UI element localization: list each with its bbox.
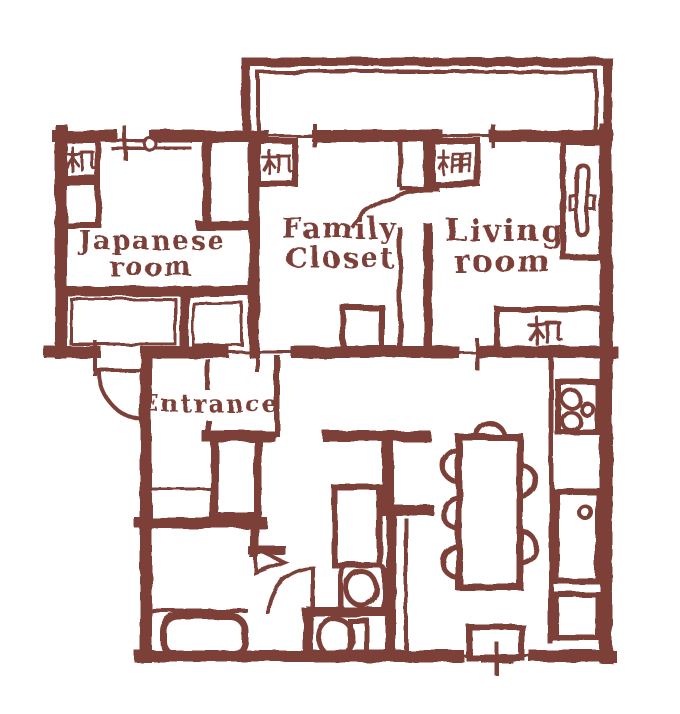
exterior-walls <box>50 130 612 657</box>
washing-machine-icon <box>334 487 379 565</box>
kitchen-sink-icon <box>556 491 598 581</box>
washroom-door-icon <box>256 549 313 612</box>
washbasin-icon <box>341 565 384 611</box>
desk-kanji-icon <box>529 317 562 343</box>
floor-plan: Japanese room Family Closet Living room … <box>0 0 680 714</box>
family-closet-label: Closet <box>285 241 395 274</box>
dining-table <box>459 437 520 587</box>
living-room-label: room <box>454 244 553 280</box>
entrance-door-icon <box>99 370 147 420</box>
interior-walls-lower <box>140 436 428 656</box>
japanese-room-label: room <box>110 253 194 283</box>
desk-kanji-icon <box>263 151 292 174</box>
shelf-kanji-icon <box>438 150 470 174</box>
closet-box <box>343 308 382 348</box>
living-room-desk <box>497 309 603 350</box>
entrance-label: Entrance <box>141 389 279 418</box>
sliding-door-cabinet-icon <box>563 142 602 257</box>
stove-icon <box>558 382 598 432</box>
balcony <box>246 62 608 130</box>
desk-kanji-icon <box>65 147 95 171</box>
kitchen-cabinet <box>556 594 598 638</box>
japanese-room-label: Japanese <box>77 226 226 256</box>
